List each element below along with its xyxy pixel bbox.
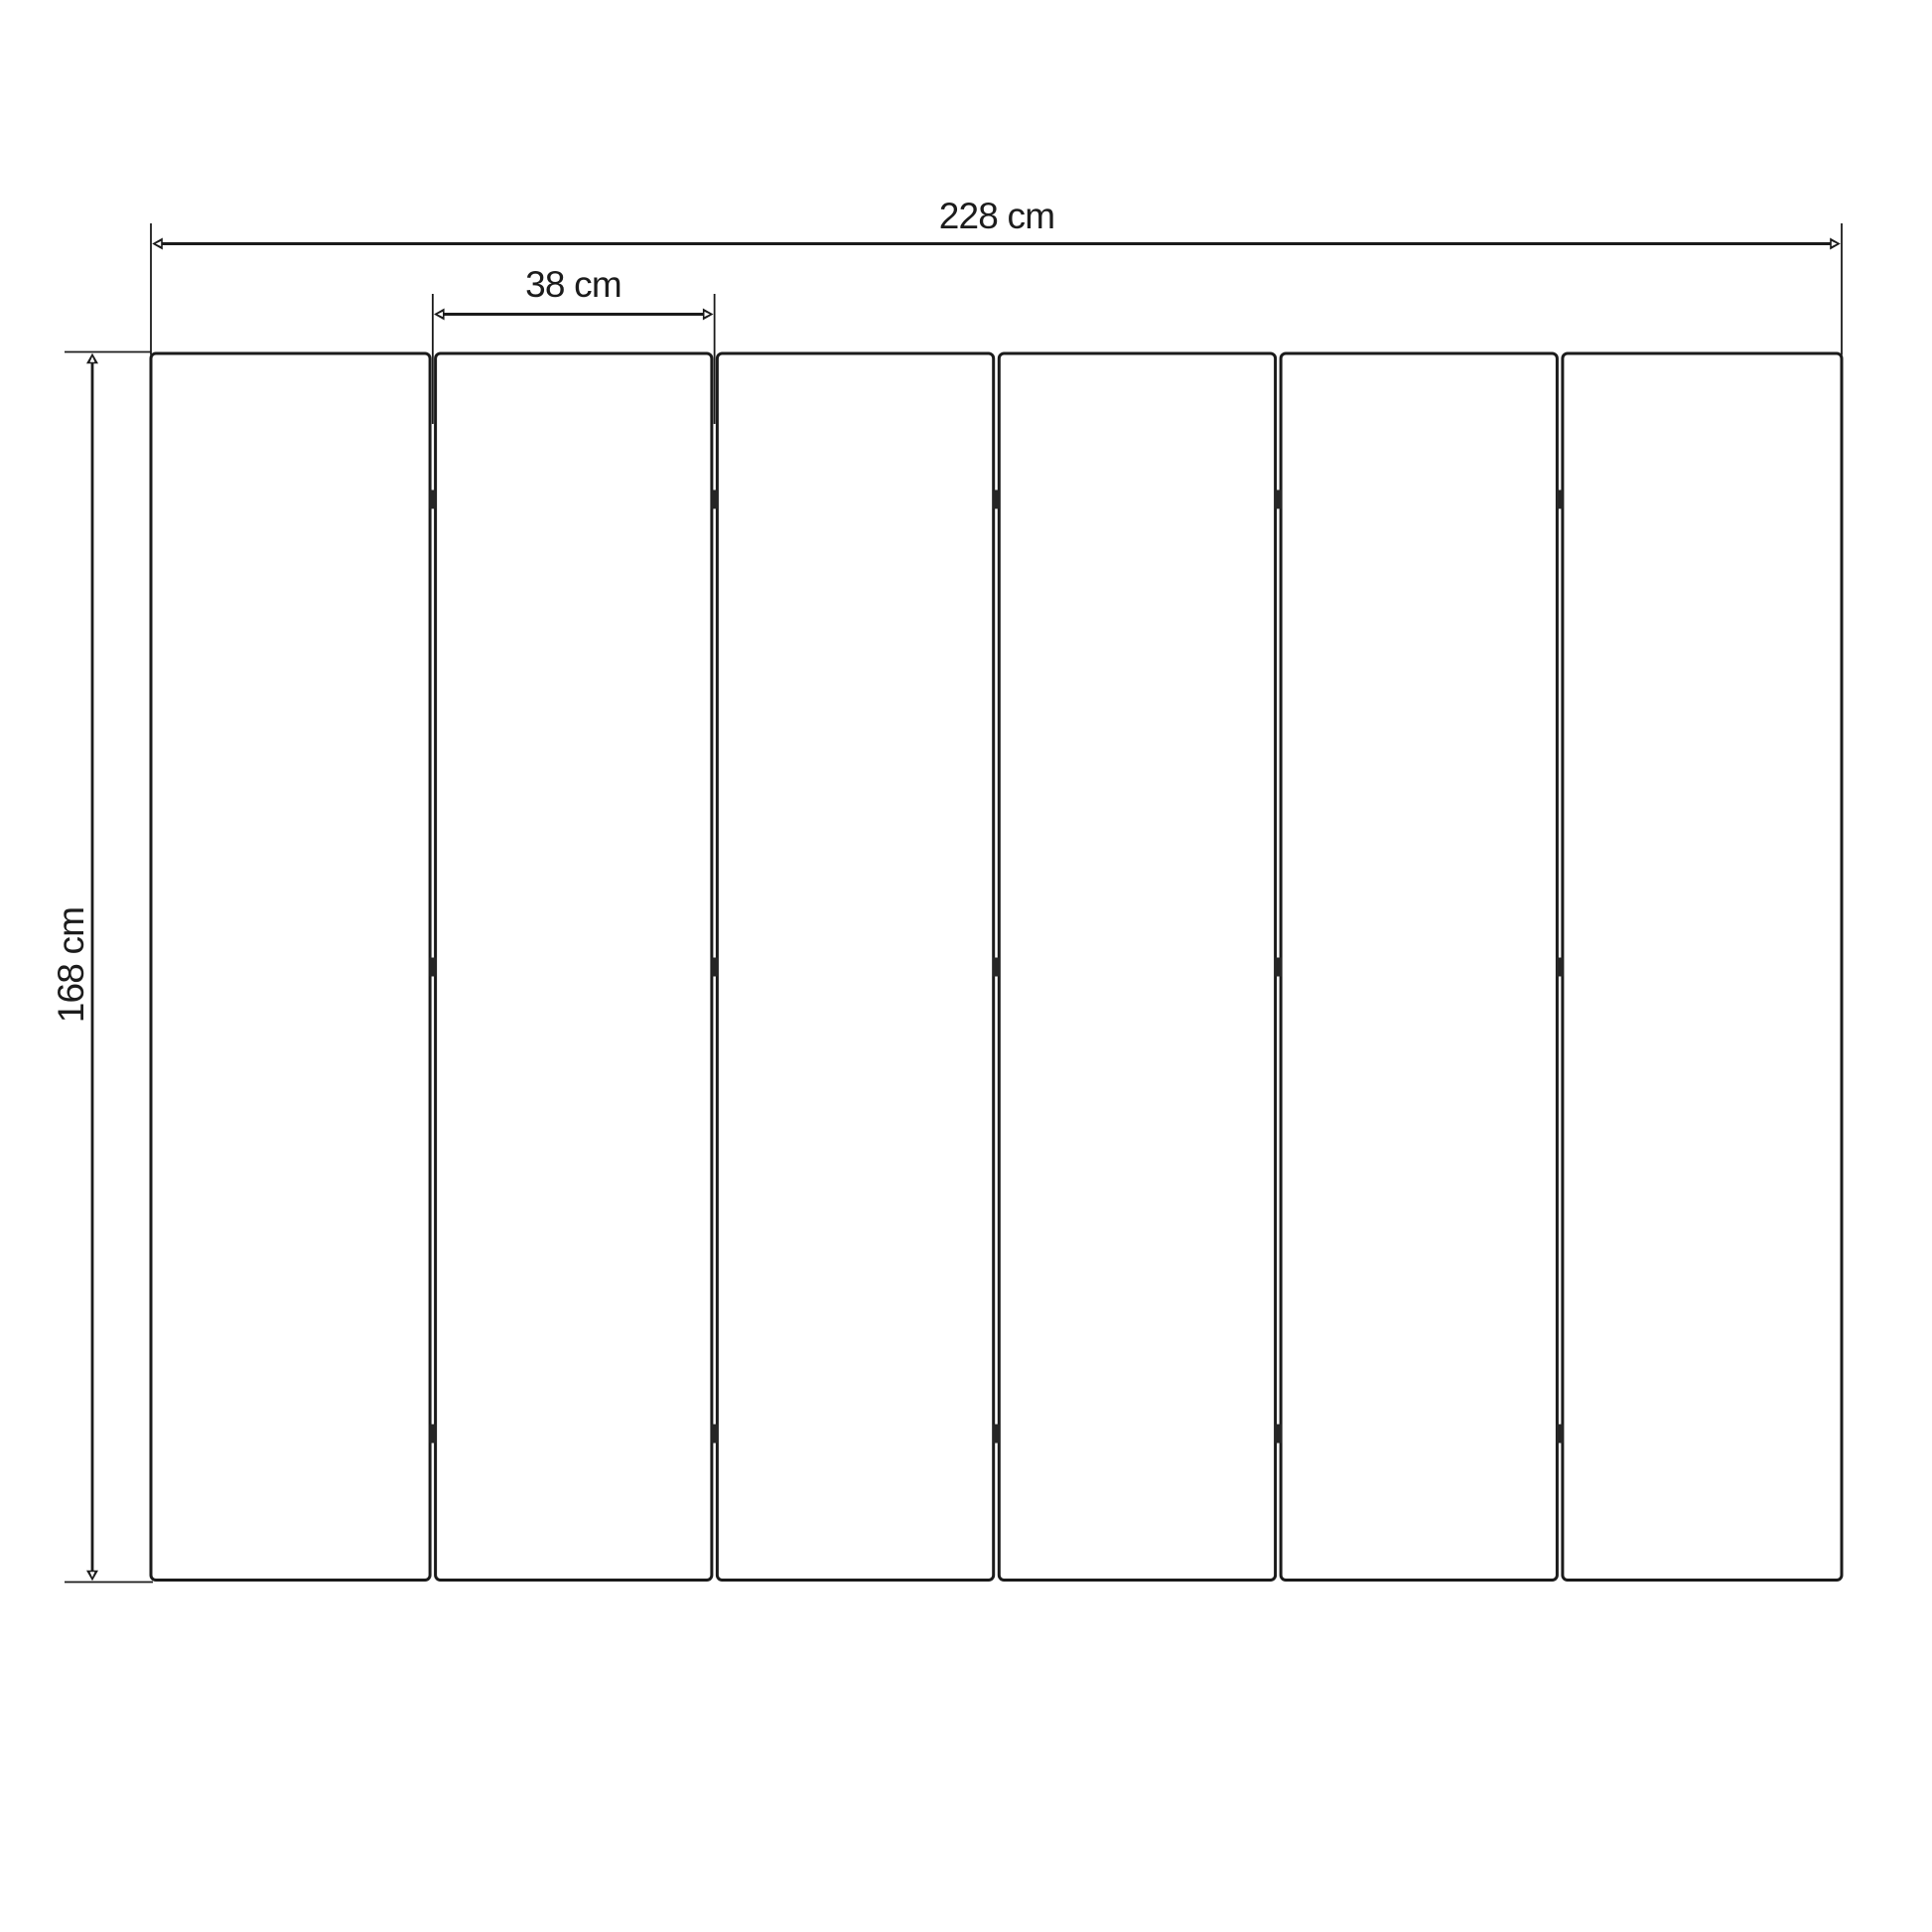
svg-text:168 cm: 168 cm (51, 907, 91, 1024)
svg-text:38 cm: 38 cm (525, 264, 621, 305)
svg-text:228 cm: 228 cm (939, 196, 1055, 236)
